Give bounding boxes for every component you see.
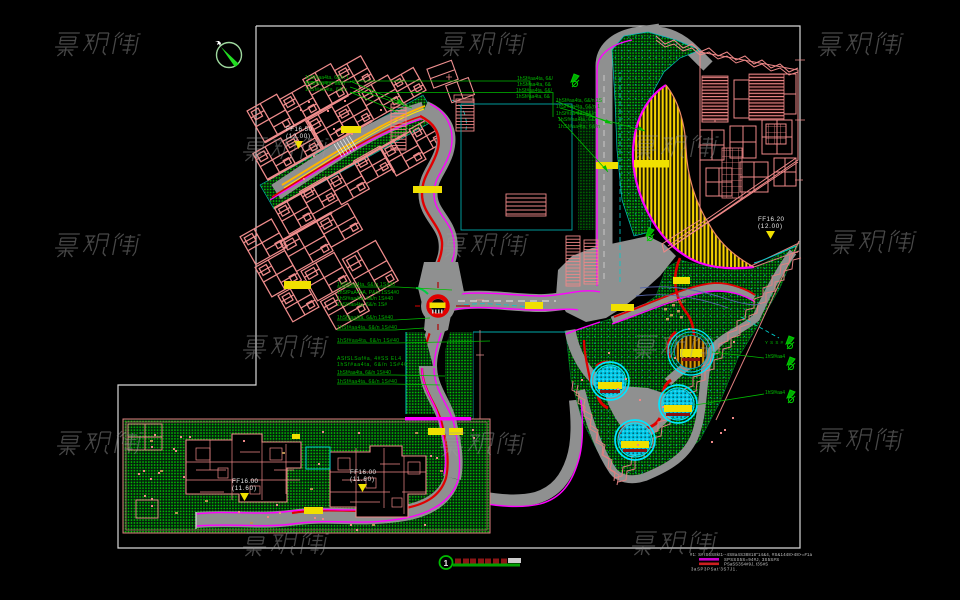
svg-text:1hSf#aa4ta, 6&/n 1S#40: 1hSf#aa4ta, 6&/n 1S#40 [337,362,407,368]
svg-text:1hSf#aa4ta, 6&/n 1S#40: 1hSf#aa4ta, 6&/n 1S#40 [337,315,393,321]
svg-text:1hSf#aa4ta, 6&/n 1S#40: 1hSf#aa4ta, 6&/n 1S#40 [337,325,397,331]
svg-text:FF16.00: FF16.00 [350,469,377,476]
svg-text:FF16.00: FF16.00 [232,478,259,485]
svg-text:1hSf#aa4ta, 6&/: 1hSf#aa4ta, 6&/ [558,117,597,123]
svg-text:1hSf#aa4ta, 6&: 1hSf#aa4ta, 6& [516,94,551,100]
svg-text:(11.60): (11.60) [232,485,256,492]
svg-text:1hSf#aa4ta, 6&/n 1S#40: 1hSf#aa4ta, 6&/n 1S#40 [337,338,399,344]
svg-text:1hSf#aa4ta, 6&/n 1S#40: 1hSf#aa4ta, 6&/n 1S#40 [337,282,395,288]
svg-text:1hSf#aa4: 1hSf#aa4 [765,354,785,360]
svg-text:J&M tSSUAPr: J&M tSSUAPr [660,299,687,304]
svg-text:1hSf#aa4: 1hSf#aa4 [765,390,785,396]
svg-text:1hSf#aa4ta, 6&/n 1S#: 1hSf#aa4ta, 6&/n 1S# [337,302,387,308]
svg-text:(11.60): (11.60) [350,476,374,483]
svg-text:1hSf#aa4ta, 6&/n: 1hSf#aa4ta, 6&/n [305,87,347,93]
svg-text:FF16.20: FF16.20 [758,216,785,223]
svg-text:(12.00): (12.00) [758,223,782,230]
svg-text:3aSP3PSat'3S7J1.: 3aSP3PSat'3S7J1. [691,567,737,572]
svg-text:1hSf#aa4ta, 6&/n 1: 1hSf#aa4ta, 6&/n 1 [556,104,600,110]
svg-text:1: 1 [444,558,449,568]
svg-text:FF16.50: FF16.50 [286,126,313,133]
svg-text:1hSf#aa4ta, 6&/n 1S#40: 1hSf#aa4ta, 6&/n 1S#40 [337,370,391,376]
svg-text:1hSf#aa4ta, 6&/n: 1hSf#aa4ta, 6&/n [558,124,600,130]
svg-text:1hSf#aa4ta, 6&/n 1S#40: 1hSf#aa4ta, 6&/n 1S#40 [337,379,397,385]
